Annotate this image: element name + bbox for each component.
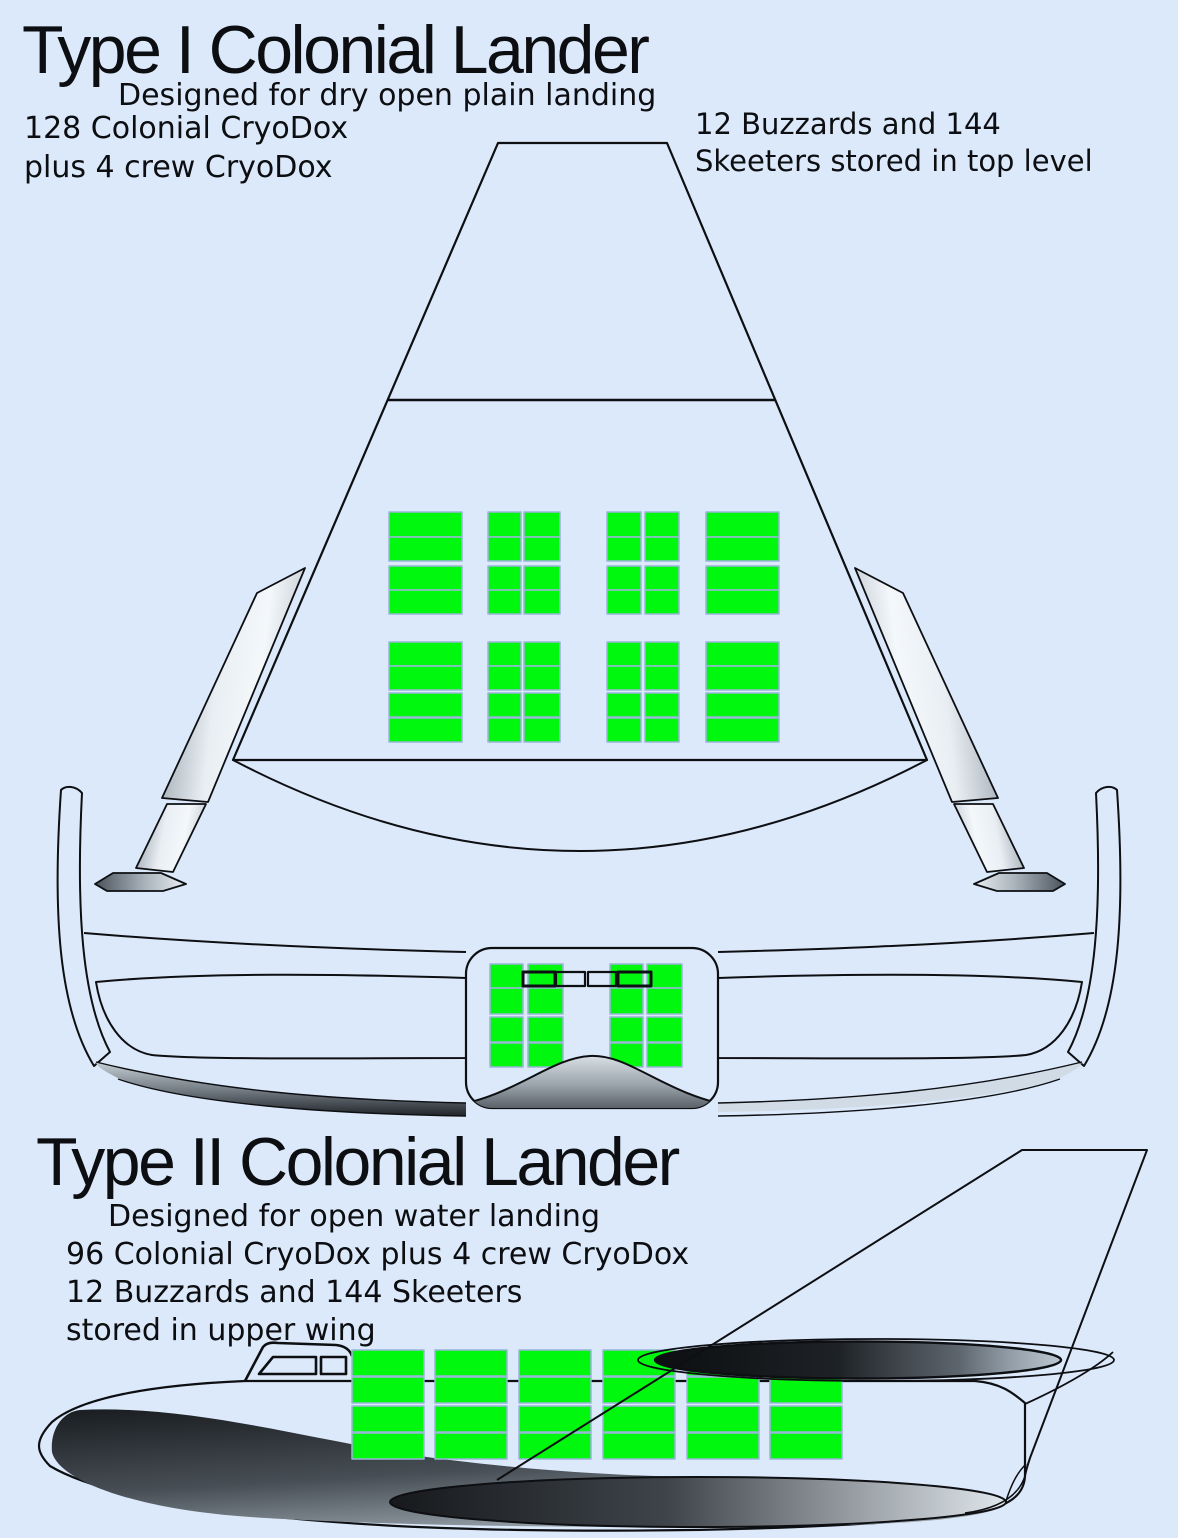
cargo-cell [770, 1433, 842, 1459]
cargo-cell [435, 1433, 507, 1459]
hull-shadow-band-right [718, 1062, 1082, 1112]
cargo-cell [389, 537, 462, 561]
cargo-cell [607, 666, 641, 690]
cargo-pod [452, 948, 732, 1122]
canopy-window-front [259, 1357, 316, 1374]
cargo-cell [607, 590, 641, 614]
cargo-cell [389, 566, 462, 590]
cargo-cell [389, 590, 462, 614]
cargo-cell [352, 1350, 424, 1376]
cargo-cell [706, 590, 779, 614]
canopy-window-rear [321, 1357, 346, 1374]
cargo-cell [519, 1377, 591, 1403]
type1-stowage-note-line2: Skeeters stored in top level [695, 145, 1093, 178]
cargo-cell [524, 642, 560, 666]
cargo-cell [645, 512, 679, 537]
type1-title: Type I Colonial Lander [22, 16, 647, 84]
type2-title: Type II Colonial Lander [36, 1128, 678, 1196]
type1-stowage-note-line1: 12 Buzzards and 144 [695, 108, 1001, 141]
cargo-cell [607, 693, 641, 717]
colonial-lander-diagram: Type I Colonial Lander Designed for dry … [0, 0, 1178, 1538]
cargo-cell [519, 1350, 591, 1376]
cargo-cell [603, 1433, 675, 1459]
cargo-cell [524, 537, 560, 561]
cargo-cell [645, 590, 679, 614]
cargo-cell [528, 1017, 563, 1042]
cargo-cell [706, 666, 779, 690]
type2-note-line3: 12 Buzzards and 144 Skeeters [66, 1276, 522, 1311]
cargo-cell [488, 642, 521, 666]
cargo-cell [770, 1406, 842, 1432]
cargo-cell [435, 1350, 507, 1376]
cargo-cell [706, 566, 779, 590]
cargo-cell [607, 537, 641, 561]
cargo-cell [706, 693, 779, 717]
leg-lower-strut [136, 804, 206, 872]
leg-lower-strut [954, 804, 1024, 872]
cargo-cell [524, 693, 560, 717]
cargo-cell [687, 1377, 759, 1403]
cargo-cell [687, 1406, 759, 1432]
cargo-cell [490, 1043, 523, 1067]
cargo-cell [645, 537, 679, 561]
cargo-cell [524, 590, 560, 614]
cargo-cell [389, 693, 462, 717]
cargo-cell [528, 964, 563, 988]
cargo-cell [488, 718, 521, 742]
cargo-cell [352, 1377, 424, 1403]
cargo-cell [645, 666, 679, 690]
cargo-cell [645, 693, 679, 717]
cargo-cell [647, 988, 682, 1014]
cargo-cell [524, 512, 560, 537]
cargo-cell [645, 642, 679, 666]
cargo-cell [435, 1406, 507, 1432]
cargo-cell [519, 1433, 591, 1459]
cargo-cell [488, 693, 521, 717]
cargo-cell [647, 1017, 682, 1042]
cargo-cell [490, 988, 523, 1014]
cargo-cell [706, 512, 779, 537]
deck-line-left [84, 933, 466, 952]
cargo-cell [524, 718, 560, 742]
type1-capacity-note-line1: 128 Colonial CryoDox [24, 112, 348, 147]
type2-note-line4: stored in upper wing [66, 1314, 376, 1349]
cargo-cell [706, 718, 779, 742]
type1-capacity-note-line2: plus 4 crew CryoDox [24, 151, 333, 186]
cargo-cell [389, 666, 462, 690]
cargo-cell [488, 512, 521, 537]
cargo-cell [645, 718, 679, 742]
cone-body [233, 143, 927, 760]
cargo-cell [389, 718, 462, 742]
cargo-cell [706, 642, 779, 666]
cargo-cell [528, 988, 563, 1014]
type2-note-line2: 96 Colonial CryoDox plus 4 crew CryoDox [66, 1238, 689, 1273]
cargo-cell [607, 566, 641, 590]
type1-lander-diagram [58, 143, 1121, 1122]
type1-subtitle: Designed for dry open plain landing [118, 79, 656, 114]
cargo-cell [389, 512, 462, 537]
cargo-cell [706, 537, 779, 561]
cargo-cell [603, 1406, 675, 1432]
side-panel-right [718, 975, 1082, 1059]
deck-line-right [718, 933, 1094, 952]
cargo-cell [488, 566, 521, 590]
cargo-cell [607, 642, 641, 666]
cargo-cell [488, 590, 521, 614]
cargo-cell [389, 642, 462, 666]
base-skirt-arc [233, 760, 927, 851]
type2-note-line1: Designed for open water landing [108, 1200, 600, 1235]
cargo-cell [607, 512, 641, 537]
cargo-cell [610, 1017, 643, 1042]
cargo-cell [647, 1043, 682, 1067]
wingtip-right [1068, 787, 1120, 1066]
cargo-cell [524, 666, 560, 690]
foot-pad-right [974, 873, 1065, 891]
bottom-float-shadow [390, 1477, 1006, 1527]
foot-pad-left [95, 873, 186, 891]
cargo-cell [524, 566, 560, 590]
cargo-cell [488, 537, 521, 561]
cargo-cell [352, 1433, 424, 1459]
cargo-cell [490, 1017, 523, 1042]
cargo-cell [687, 1433, 759, 1459]
upper-wing-bay-shadow [655, 1342, 1061, 1379]
cargo-cell [352, 1406, 424, 1432]
side-panel-left [96, 975, 466, 1059]
cargo-cell [488, 666, 521, 690]
cargo-cell [645, 566, 679, 590]
cargo-cell [435, 1377, 507, 1403]
cargo-cell [610, 988, 643, 1014]
cargo-cell [607, 718, 641, 742]
cargo-cell [490, 964, 523, 988]
wingtip-left [58, 787, 110, 1066]
